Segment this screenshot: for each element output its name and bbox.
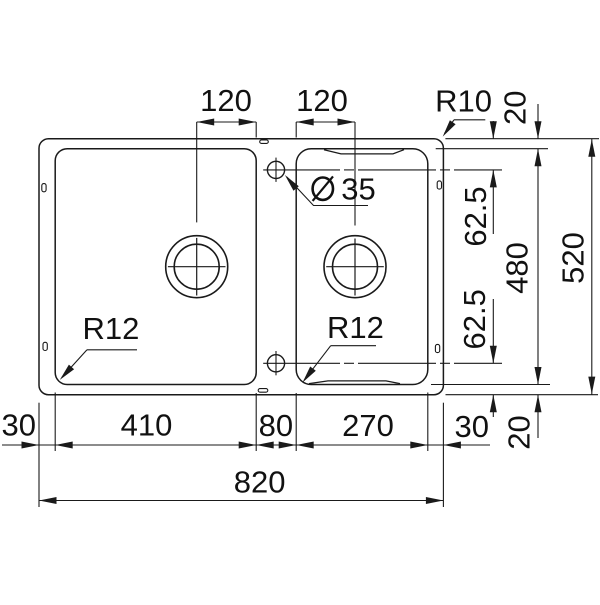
svg-text:120: 120 bbox=[200, 83, 252, 118]
svg-text:R10: R10 bbox=[435, 84, 492, 119]
svg-text:80: 80 bbox=[259, 408, 293, 443]
svg-text:120: 120 bbox=[296, 83, 348, 118]
svg-text:62.5: 62.5 bbox=[458, 186, 493, 246]
svg-text:62.5: 62.5 bbox=[457, 289, 492, 349]
svg-text:820: 820 bbox=[234, 465, 286, 500]
svg-text:520: 520 bbox=[555, 232, 590, 284]
svg-text:30: 30 bbox=[2, 408, 36, 443]
svg-text:410: 410 bbox=[121, 408, 173, 443]
svg-text:30: 30 bbox=[455, 409, 489, 444]
svg-text:R12: R12 bbox=[82, 311, 139, 346]
svg-text:480: 480 bbox=[500, 242, 535, 294]
svg-text:20: 20 bbox=[497, 90, 532, 124]
svg-text:270: 270 bbox=[342, 408, 394, 443]
svg-text:R12: R12 bbox=[327, 310, 384, 345]
svg-text:35: 35 bbox=[341, 171, 375, 206]
svg-text:20: 20 bbox=[501, 415, 536, 449]
